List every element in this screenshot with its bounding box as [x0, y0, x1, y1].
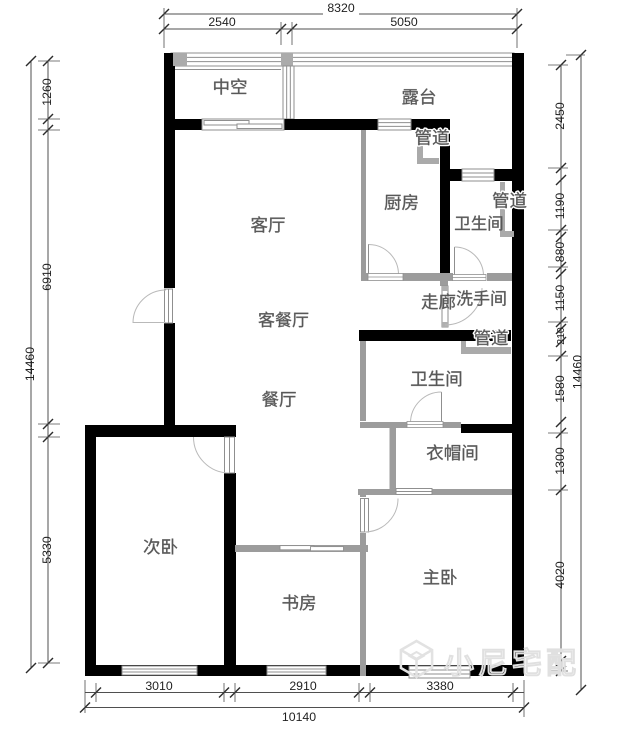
svg-text:2450: 2450	[553, 102, 567, 130]
svg-text:4020: 4020	[553, 561, 567, 589]
svg-text:6910: 6910	[40, 263, 54, 291]
svg-text:5330: 5330	[40, 536, 54, 564]
svg-text:1150: 1150	[553, 285, 567, 312]
svg-text:8320: 8320	[327, 1, 355, 15]
svg-text:1300: 1300	[553, 447, 567, 475]
svg-text:1260: 1260	[40, 78, 54, 106]
svg-text:5050: 5050	[390, 15, 418, 29]
svg-text:2540: 2540	[208, 15, 236, 29]
svg-text:880: 880	[553, 242, 567, 263]
svg-text:1190: 1190	[553, 193, 567, 220]
svg-text:14460: 14460	[571, 355, 585, 389]
svg-text:2910: 2910	[289, 679, 317, 693]
svg-text:3010: 3010	[145, 679, 173, 693]
svg-text:3380: 3380	[426, 679, 454, 693]
svg-text:1580: 1580	[553, 375, 567, 403]
svg-text:10140: 10140	[282, 710, 316, 724]
svg-text:210: 210	[555, 327, 567, 345]
svg-text:14460: 14460	[23, 347, 37, 381]
